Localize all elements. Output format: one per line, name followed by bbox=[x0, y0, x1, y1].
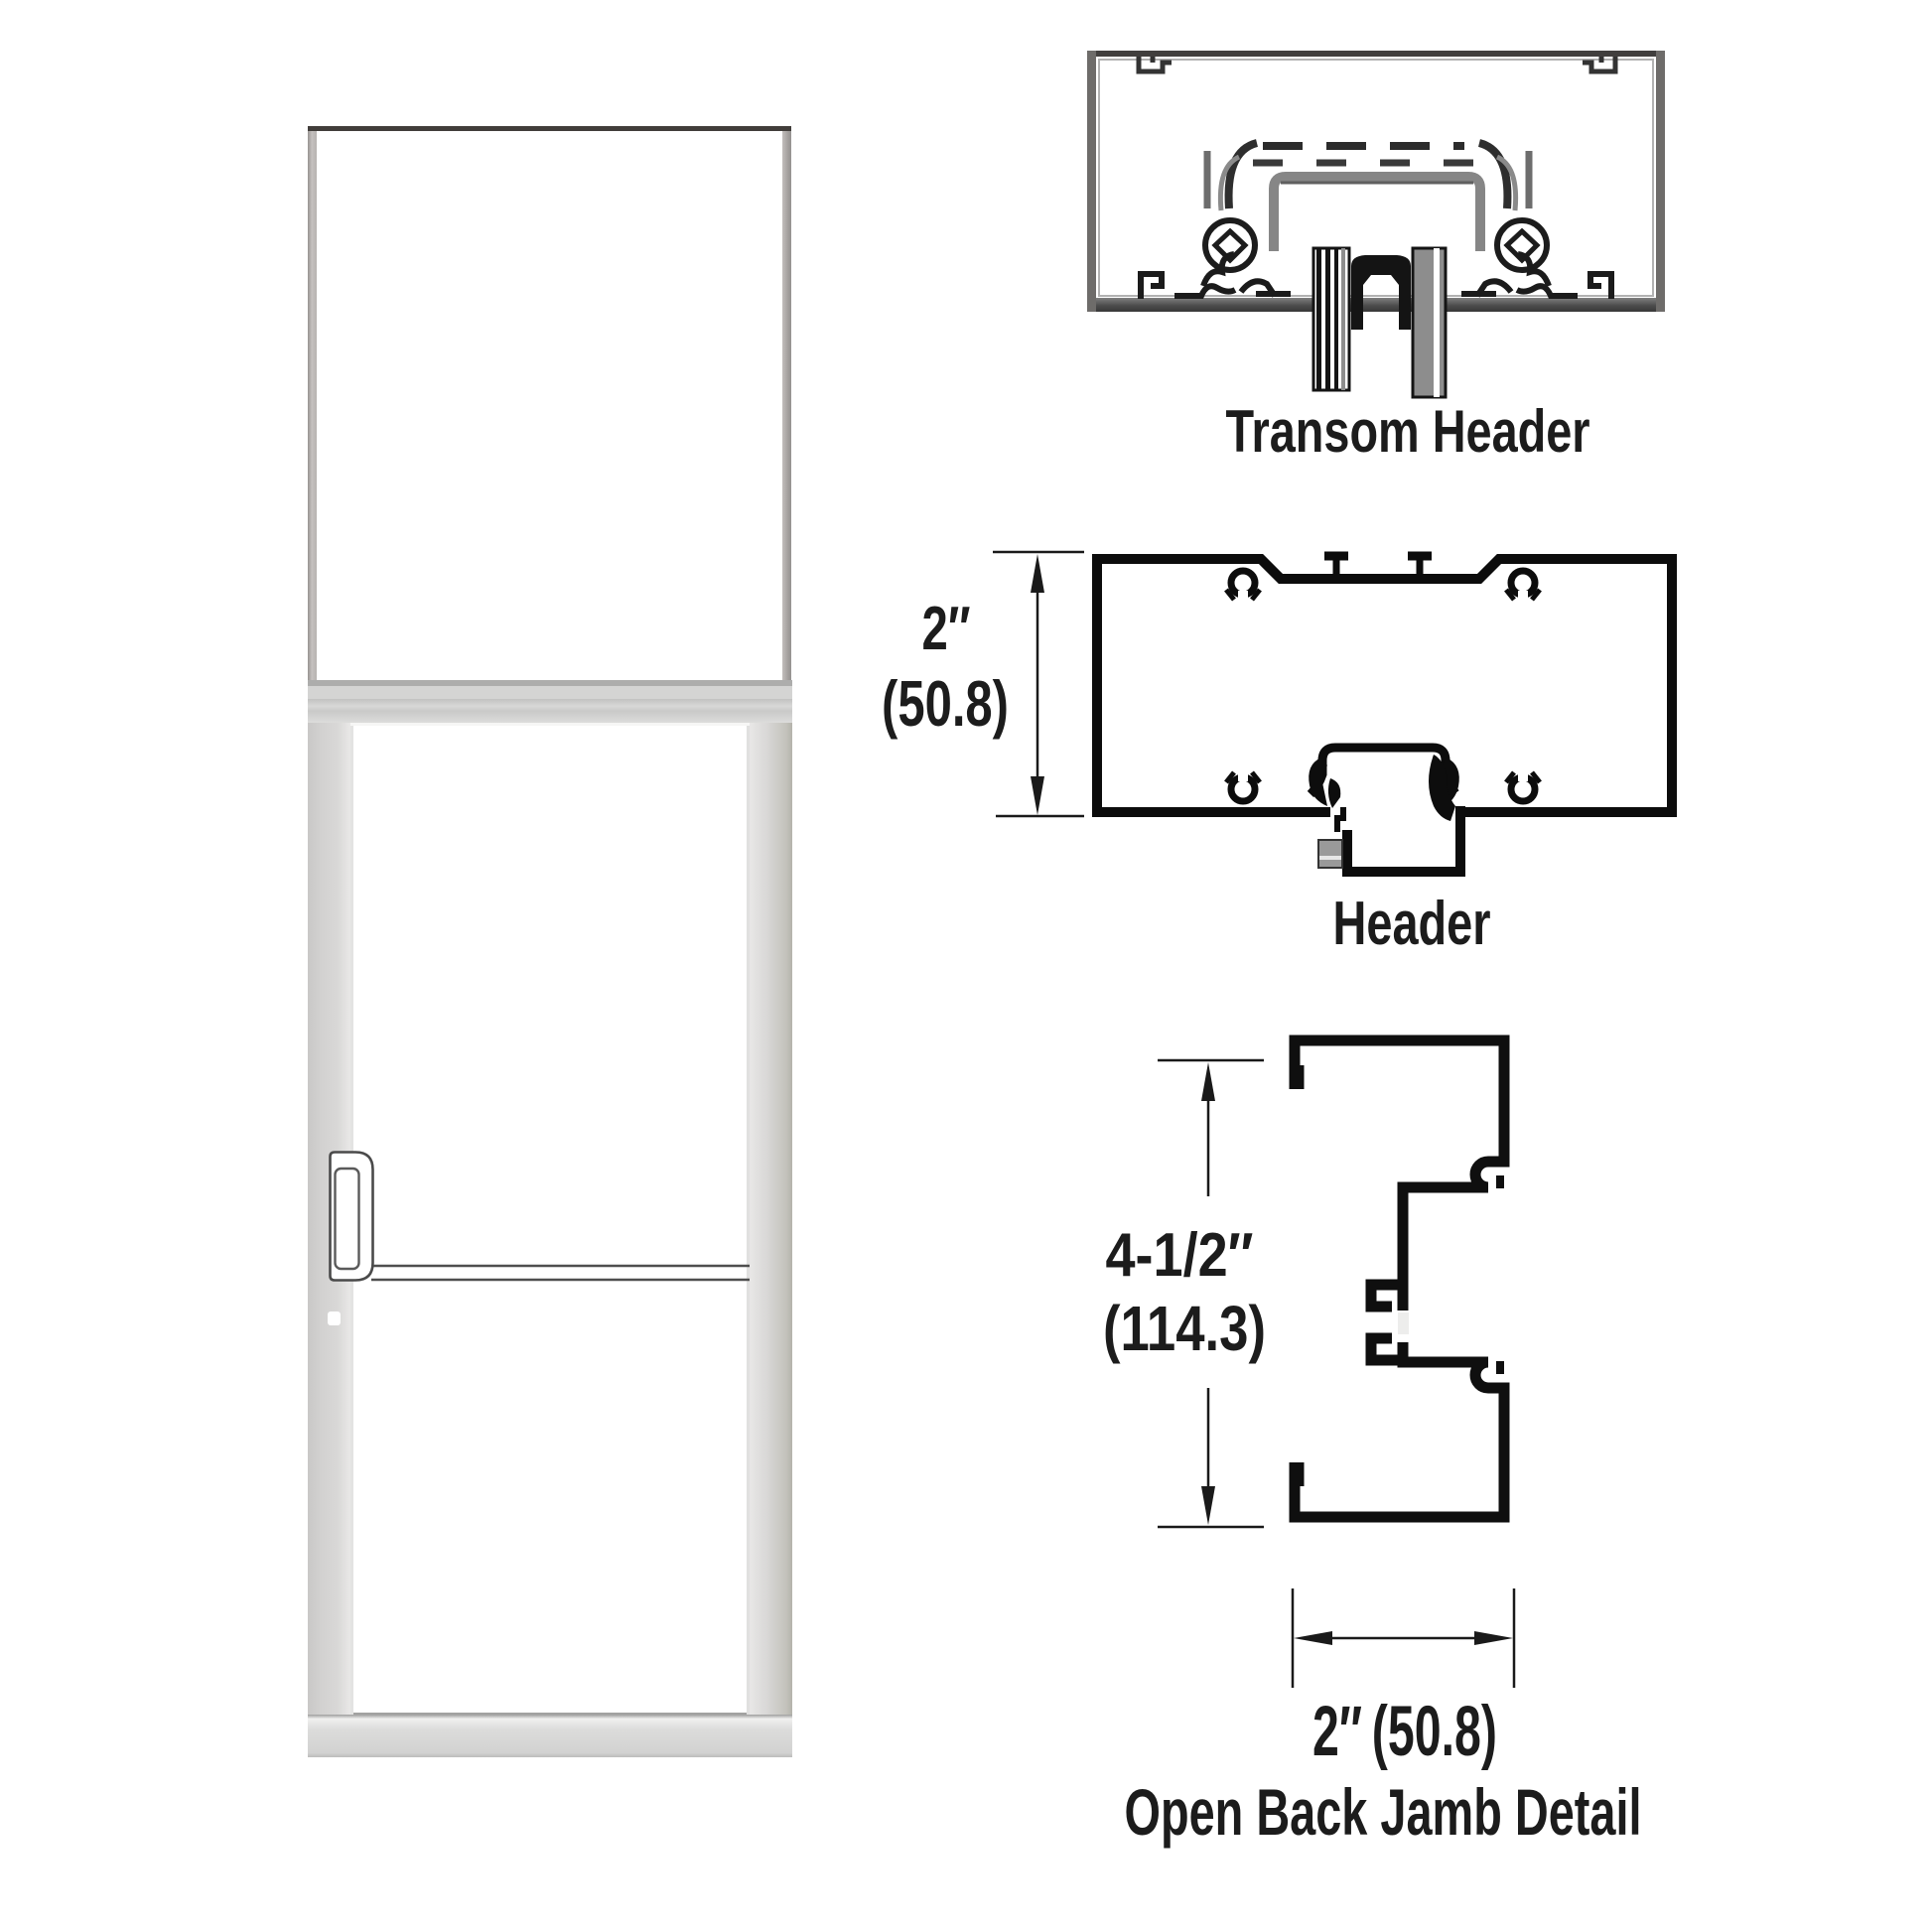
svg-text:Header: Header bbox=[1333, 890, 1491, 958]
svg-text:Open Back Jamb Detail: Open Back Jamb Detail bbox=[1125, 1775, 1642, 1849]
svg-text:(50.8): (50.8) bbox=[882, 667, 1009, 740]
svg-text:(114.3): (114.3) bbox=[1103, 1293, 1266, 1364]
svg-text:4-1/2″: 4-1/2″ bbox=[1106, 1221, 1254, 1290]
svg-text:Transom Header: Transom Header bbox=[1226, 398, 1590, 465]
svg-text:2″: 2″ bbox=[922, 595, 971, 663]
svg-text:2″ (50.8): 2″ (50.8) bbox=[1312, 1693, 1497, 1771]
